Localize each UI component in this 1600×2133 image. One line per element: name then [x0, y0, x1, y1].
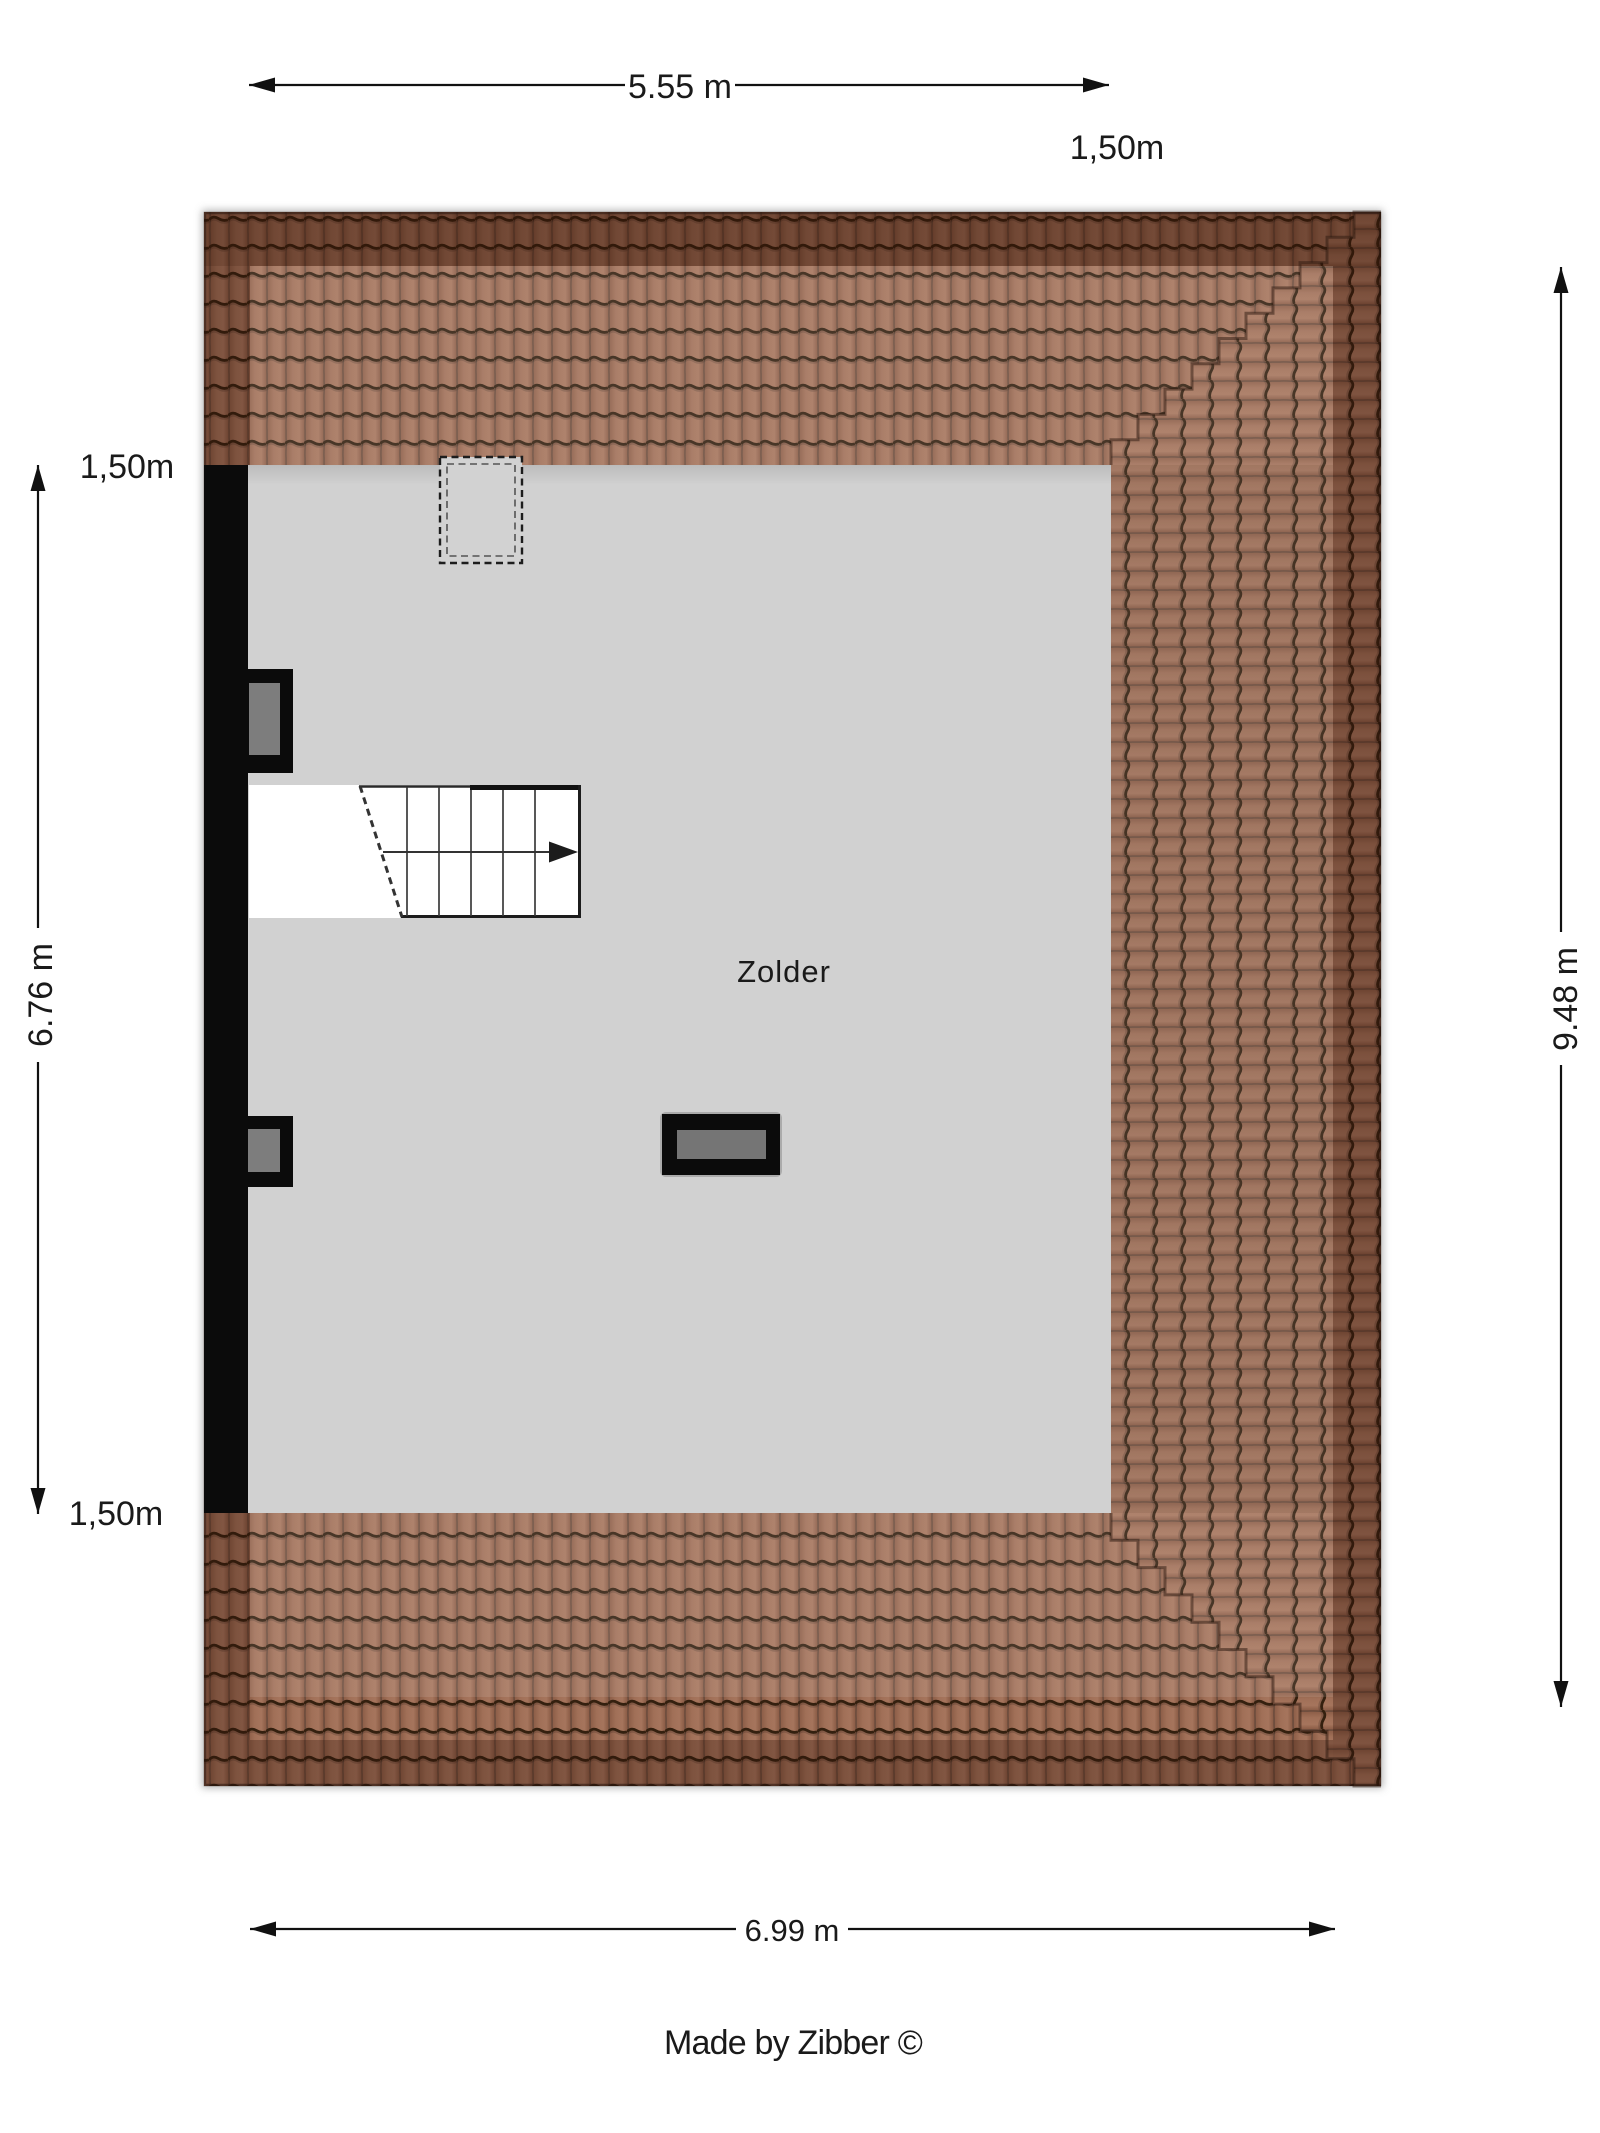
- svg-text:9.48 m: 9.48 m: [1547, 947, 1585, 1051]
- svg-text:1,50m: 1,50m: [1070, 129, 1165, 167]
- svg-text:6.76 m: 6.76 m: [22, 943, 60, 1047]
- svg-text:Made by Zibber ©: Made by Zibber ©: [664, 2024, 923, 2062]
- svg-text:Zolder: Zolder: [737, 954, 831, 989]
- svg-text:5.55 m: 5.55 m: [628, 68, 732, 106]
- svg-text:6.99 m: 6.99 m: [745, 1913, 840, 1948]
- svg-text:1,50m: 1,50m: [80, 448, 175, 486]
- svg-text:1,50m: 1,50m: [69, 1495, 164, 1533]
